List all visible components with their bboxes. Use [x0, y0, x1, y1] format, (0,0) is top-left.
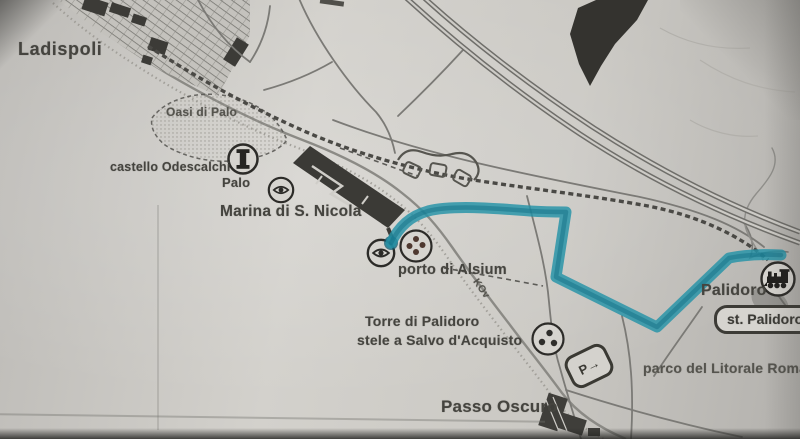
dots-icon: [401, 231, 432, 262]
label-castello-odescalchi: castello Odescalchi: [110, 161, 231, 174]
label-passo-oscuro: Passo Oscuro: [441, 398, 558, 415]
map-symbols: P→: [229, 145, 795, 390]
map-photo: P→ Ladispoli Oasi di Palo castello Odesc…: [0, 0, 800, 439]
photo-shadow-right: [764, 0, 800, 439]
paper-crease: [157, 205, 159, 430]
label-palidoro: Palidoro: [701, 283, 767, 299]
label-marina-di-s-nicola: Marina di S. Nicola: [220, 204, 362, 220]
photo-shadow-top-left: [0, 0, 78, 78]
label-stele-salvo-acquisto: stele a Salvo d'Acquisto: [357, 333, 522, 347]
signpost-icon: P→: [563, 342, 615, 389]
dots-icon: [533, 324, 564, 355]
label-torre-di-palidoro: Torre di Palidoro: [365, 314, 479, 328]
tower-icon: [229, 145, 258, 174]
label-porto-di-alsium: porto di Alsium: [398, 263, 507, 278]
photo-shadow-bottom: [0, 428, 800, 439]
label-oasi-di-palo: Oasi di Palo: [166, 106, 237, 118]
label-palo: Palo: [222, 176, 250, 189]
eye-icon: [269, 178, 293, 202]
dark-area-blob: [570, 0, 648, 86]
